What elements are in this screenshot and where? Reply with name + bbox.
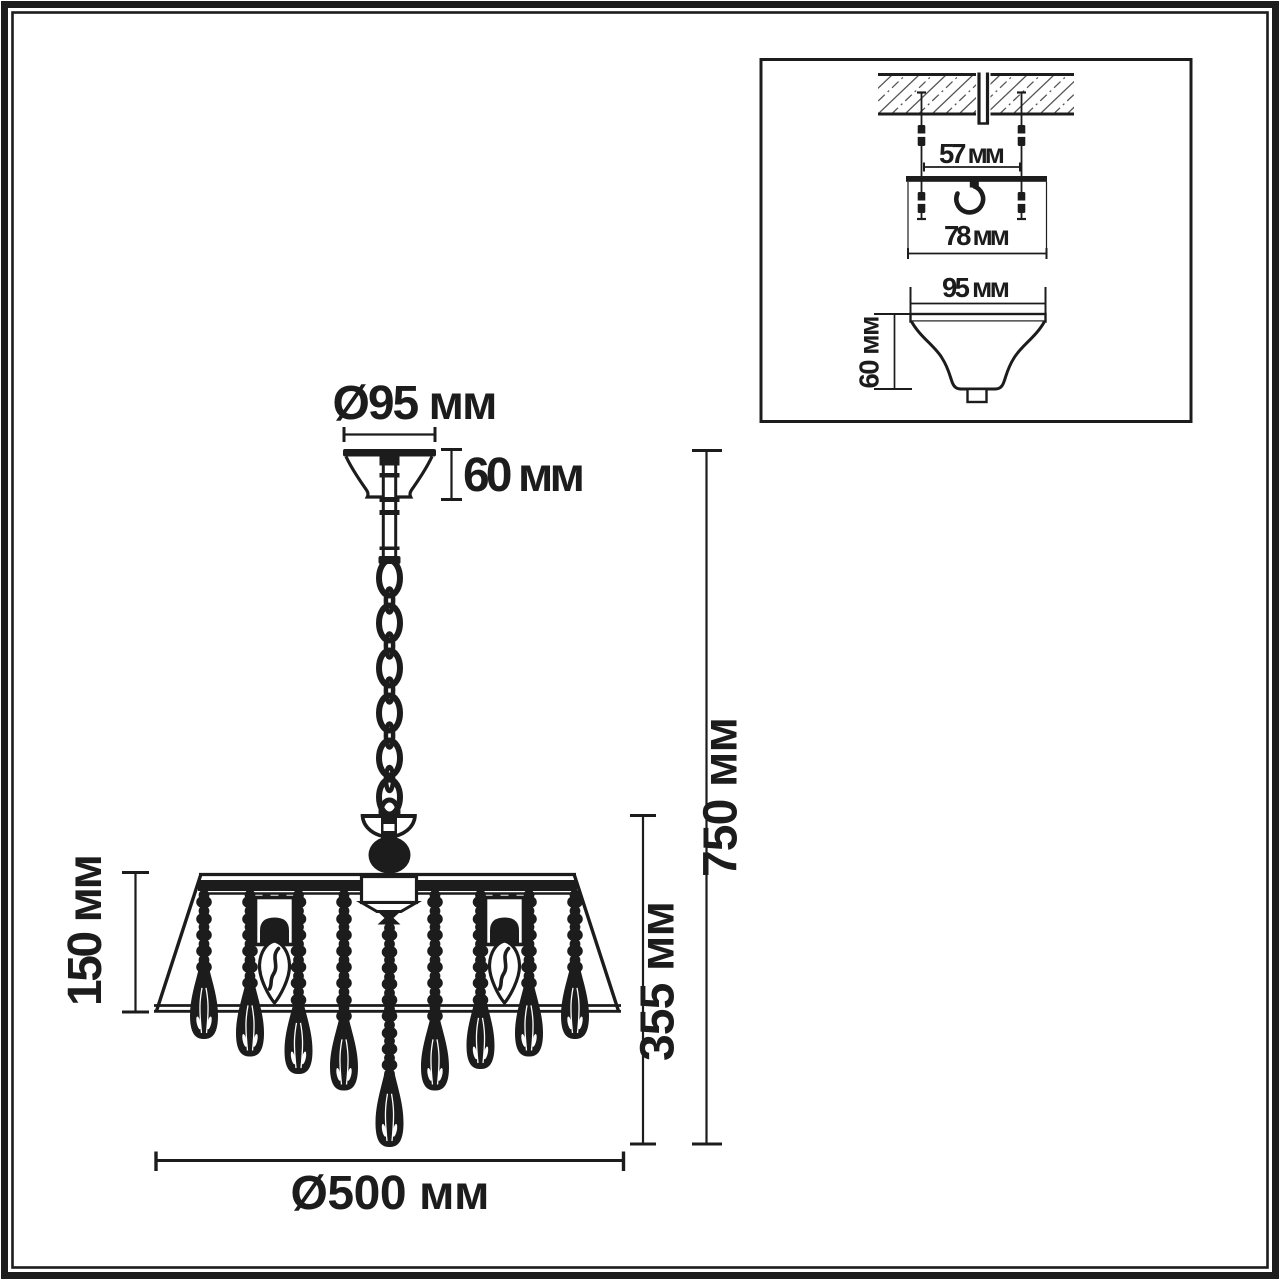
svg-text:57 мм: 57 мм bbox=[939, 138, 1005, 169]
svg-text:60 мм: 60 мм bbox=[854, 316, 885, 389]
svg-text:78 мм: 78 мм bbox=[944, 220, 1010, 251]
svg-text:60 мм: 60 мм bbox=[463, 449, 585, 502]
svg-text:355 мм: 355 мм bbox=[632, 901, 685, 1061]
svg-text:150 мм: 150 мм bbox=[59, 854, 112, 1006]
svg-text:750 мм: 750 мм bbox=[695, 717, 748, 877]
svg-text:95 мм: 95 мм bbox=[942, 272, 1010, 303]
svg-text:Ø95 мм: Ø95 мм bbox=[333, 377, 498, 430]
svg-text:Ø500 мм: Ø500 мм bbox=[291, 1167, 490, 1220]
